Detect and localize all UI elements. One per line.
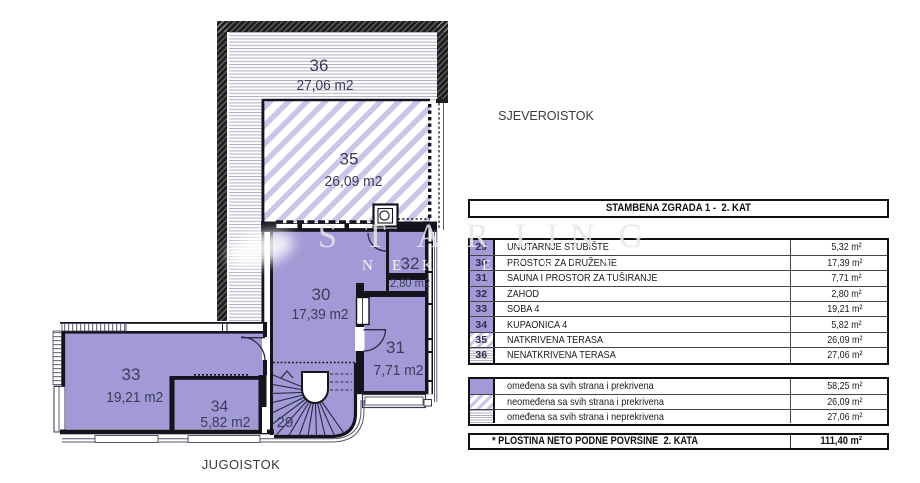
svg-text:19,21 m2: 19,21 m2: [106, 390, 163, 406]
svg-text:7,71 m2: 7,71 m2: [374, 363, 424, 379]
svg-text:SJEVEROISTOK: SJEVEROISTOK: [498, 109, 594, 123]
svg-text:2,80 m2: 2,80 m2: [390, 278, 430, 290]
svg-text:27,06 m2: 27,06 m2: [297, 78, 354, 94]
svg-text:29: 29: [277, 414, 294, 431]
svg-text:32: 32: [401, 254, 420, 273]
svg-text:36: 36: [310, 56, 329, 75]
svg-text:5,82 m2: 5,82 m2: [200, 415, 250, 431]
svg-text:JUGOISTOK: JUGOISTOK: [202, 457, 280, 472]
svg-text:35: 35: [340, 150, 359, 169]
svg-text:26,09 m2: 26,09 m2: [325, 174, 383, 190]
svg-text:34: 34: [211, 399, 229, 416]
svg-text:33: 33: [122, 365, 141, 384]
svg-text:31: 31: [386, 338, 405, 357]
svg-text:30: 30: [312, 285, 331, 304]
svg-text:17,39 m2: 17,39 m2: [292, 307, 349, 323]
